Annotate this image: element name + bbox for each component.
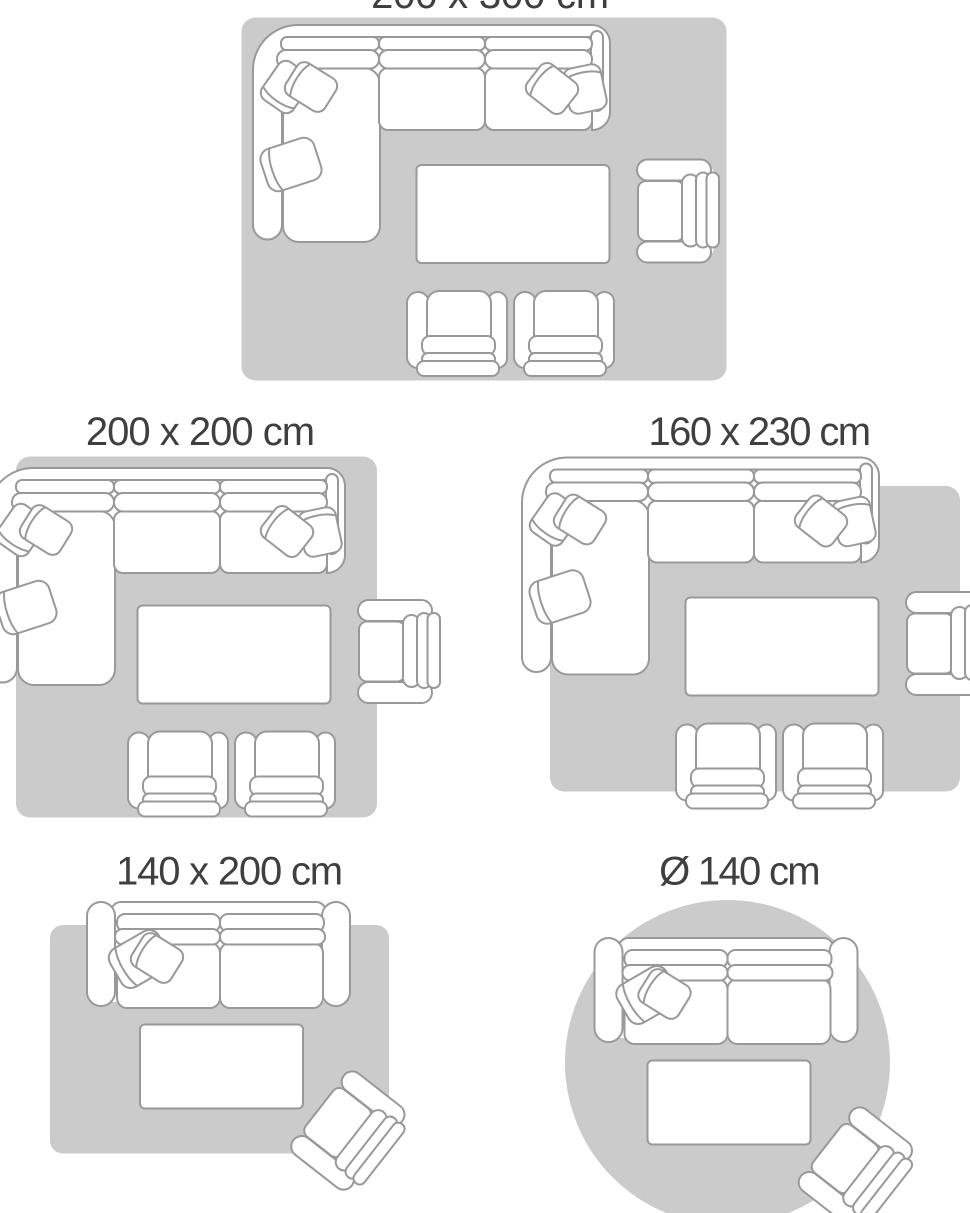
svg-text:140 x 200 cm: 140 x 200 cm	[116, 850, 342, 894]
svg-text:200 x 200 cm: 200 x 200 cm	[86, 410, 314, 454]
svg-text:Ø 140 cm: Ø 140 cm	[659, 850, 819, 894]
svg-text:200 x 300 cm: 200 x 300 cm	[371, 0, 609, 17]
svg-text:160 x 230 cm: 160 x 230 cm	[649, 410, 870, 454]
